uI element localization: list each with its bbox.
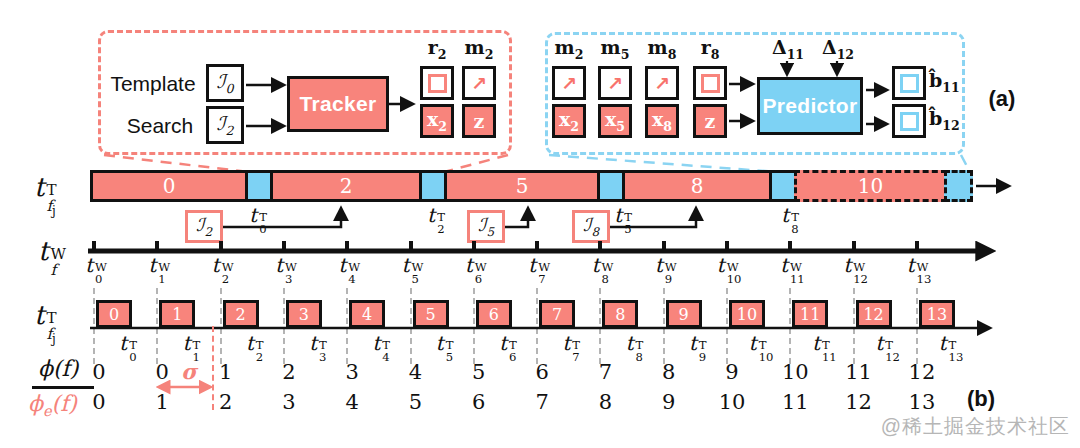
phi-e-value: 1: [140, 392, 184, 413]
wall-tick-label: tW7: [518, 256, 560, 284]
r8-box: [693, 66, 727, 100]
phi-value: 2: [267, 362, 311, 383]
wall-tick-gridline: [220, 288, 222, 364]
panel-a-tag: (a): [980, 86, 1024, 112]
m2-label: m2: [459, 39, 499, 61]
phi-value: 12: [900, 362, 944, 383]
gpu-idle-gap: [597, 170, 625, 202]
x8-box: x8: [645, 104, 679, 138]
wall-tick: [92, 241, 96, 250]
b12-label: b̂12: [929, 110, 965, 132]
phi-e-value: 10: [710, 392, 754, 413]
delta11-label: Δ11: [769, 39, 807, 61]
gpu-work-segment: 10: [794, 170, 947, 202]
z-box: z: [693, 104, 727, 138]
x2-box: x2: [552, 104, 586, 138]
search-frame-symbol: ℐ2: [217, 112, 234, 138]
phi-value: 3: [330, 362, 374, 383]
wall-tick-gridline: [346, 288, 348, 364]
template-frame-symbol: ℐ0: [217, 70, 234, 96]
motion-arrow-icon: ↗: [471, 72, 487, 94]
frame-time-label: tT2: [232, 334, 278, 362]
m2-label: m2: [549, 39, 589, 61]
wall-tick-label: tW11: [771, 256, 813, 284]
x5-box: x5: [598, 104, 632, 138]
watermark: @稀土掘金技术社区: [878, 413, 1070, 440]
r8-label: r8: [690, 39, 730, 61]
wall-tick: [788, 241, 792, 250]
phi-value: 10: [773, 362, 817, 383]
wall-tick-label: tW4: [328, 256, 370, 284]
wall-tick-gridline: [789, 288, 791, 364]
wall-tick-label: tW6: [455, 256, 497, 284]
wall-tick: [345, 241, 349, 250]
wall-tick-gridline: [599, 288, 601, 364]
frame-time-label: tT3: [295, 334, 341, 362]
b11-label: b̂11: [929, 72, 965, 94]
wall-tick-gridline: [93, 288, 95, 364]
wall-tick-gridline: [410, 288, 412, 364]
b12-box: [892, 104, 926, 138]
frame-box: 4: [349, 300, 385, 328]
frame-time-label: tT12: [865, 334, 911, 362]
wall-tick-label: tW9: [645, 256, 687, 284]
wall-axis-label: tWf: [38, 236, 66, 279]
r2-label: r2: [417, 39, 457, 61]
phi-e-value: 6: [457, 392, 501, 413]
phi-value: 0: [140, 362, 184, 383]
wall-tick-label: tW1: [138, 256, 180, 284]
gpu-idle-gap: [944, 170, 973, 202]
phi-e-value: 3: [267, 392, 311, 413]
phi-value: 9: [710, 362, 754, 383]
wall-tick-gridline: [473, 288, 475, 364]
frame-time-label: tT9: [675, 334, 721, 362]
wall-tick: [662, 241, 666, 250]
wall-tick-label: tW12: [835, 256, 877, 284]
wall-tick-label: tW8: [581, 256, 623, 284]
wall-tick: [472, 241, 476, 250]
gpu-idle-gap: [769, 170, 797, 202]
wall-tick-label: tW13: [898, 256, 940, 284]
z-box: z: [462, 104, 496, 138]
wall-tick-label: tW3: [265, 256, 307, 284]
predictor-module: Predictor: [757, 77, 863, 135]
template-frame-box: ℐ0: [206, 64, 244, 102]
gpu-idle-gap: [245, 170, 273, 202]
frame-box: 10: [729, 300, 765, 328]
figure-canvas: Template ℐ0 Search ℐ2 Tracker r2 m2 ↗ x2…: [0, 0, 1080, 448]
wall-tick: [915, 241, 919, 250]
frame-box: 1: [159, 300, 195, 328]
phi-e-value: 0: [77, 392, 121, 413]
wall-tick-gridline: [156, 288, 158, 364]
phi-e-label: ϕe(f): [28, 391, 77, 419]
wall-tick: [535, 241, 539, 250]
frame-time-label: tT10: [738, 334, 784, 362]
phi-value: 4: [394, 362, 438, 383]
search-frame-box: ℐ2: [206, 106, 244, 144]
frame-box: 13: [919, 300, 955, 328]
b11-box: [892, 66, 926, 100]
frame-arrival-box: ℐ2: [185, 210, 223, 243]
frame-time-label: tT13: [928, 334, 974, 362]
panel-b-tag: (b): [956, 386, 1006, 412]
wall-tick: [409, 241, 413, 250]
wall-tick: [219, 241, 223, 250]
phi-label: ϕ(f): [38, 356, 78, 381]
frame-box: 7: [539, 300, 575, 328]
phi-e-value: 12: [837, 392, 881, 413]
m8-label: m8: [642, 39, 682, 61]
phi-value: 7: [583, 362, 627, 383]
frame-time-label: tT7: [548, 334, 594, 362]
gpu-boundary-time-label: tT2: [414, 205, 458, 235]
phi-e-value: 13: [900, 392, 944, 413]
gpu-axis-label: tTfj: [34, 172, 57, 218]
wall-tick-gridline: [283, 288, 285, 364]
phi-value: 1: [204, 362, 248, 383]
phi-value: 5: [457, 362, 501, 383]
phi-e-value: 8: [583, 392, 627, 413]
gpu-work-segment: 2: [270, 170, 422, 202]
phi-value: 11: [837, 362, 881, 383]
fraction-divider: [32, 386, 94, 389]
wall-tick: [852, 241, 856, 250]
wall-tick-label: tW10: [708, 256, 750, 284]
frame-box: 9: [666, 300, 702, 328]
frame-box: 0: [96, 300, 132, 328]
wall-tick-gridline: [916, 288, 918, 364]
r2-box: [420, 66, 454, 100]
frame-box: 11: [792, 300, 828, 328]
frame-box: 12: [856, 300, 892, 328]
frame-arrival-box: ℐ5: [467, 210, 505, 243]
frame-axis-label: tTfj: [34, 300, 57, 346]
gpu-boundary-time-label: tT0: [236, 205, 280, 235]
phi-value: 0: [77, 362, 121, 383]
motion-arrow-icon: ↗: [607, 72, 623, 94]
wall-tick: [155, 241, 159, 250]
frame-time-label: tT6: [485, 334, 531, 362]
frame-box: 3: [286, 300, 322, 328]
phi-e-value: 2: [204, 392, 248, 413]
phi-e-value: 7: [520, 392, 564, 413]
frame-arrival-box: ℐ8: [572, 210, 610, 243]
box-outline-icon: [701, 74, 720, 93]
wall-tick: [725, 241, 729, 250]
phi-e-value: 11: [773, 392, 817, 413]
bbox-outline-icon: [900, 112, 919, 131]
phi-e-value: 4: [330, 392, 374, 413]
wall-tick-gridline: [726, 288, 728, 364]
frame-time-label: tT1: [168, 334, 214, 362]
wall-tick-gridline: [663, 288, 665, 364]
motion-arrow-icon: ↗: [654, 72, 670, 94]
gpu-work-segment: 8: [622, 170, 772, 202]
m2-box: ↗: [462, 66, 496, 100]
delta12-label: Δ12: [819, 39, 857, 61]
frame-box: 2: [223, 300, 259, 328]
gpu-work-segment: 5: [444, 170, 600, 202]
bbox-outline-icon: [900, 74, 919, 93]
phi-value: 6: [520, 362, 564, 383]
m2-box: ↗: [552, 66, 586, 100]
frame-box: 8: [602, 300, 638, 328]
gpu-work-segment: 0: [90, 170, 248, 202]
x2-box: x2: [420, 104, 454, 138]
m5-box: ↗: [598, 66, 632, 100]
motion-arrow-icon: ↗: [561, 72, 577, 94]
wall-tick: [282, 241, 286, 250]
frame-time-label: tT0: [105, 334, 151, 362]
frame-time-label: tT5: [422, 334, 468, 362]
frame-time-label: tT11: [801, 334, 847, 362]
wall-tick-gridline: [536, 288, 538, 364]
wall-tick-label: tW2: [202, 256, 244, 284]
search-label: Search: [118, 112, 202, 138]
frame5-arrival-arrow: [504, 210, 528, 227]
tracker-module: Tracker: [287, 76, 389, 132]
phi-e-value: 5: [394, 392, 438, 413]
template-label: Template: [104, 70, 202, 96]
box-outline-icon: [428, 74, 447, 93]
wall-tick: [598, 241, 602, 250]
phi-value: 8: [647, 362, 691, 383]
m5-label: m5: [595, 39, 635, 61]
m8-box: ↗: [645, 66, 679, 100]
wall-tick-label: tW5: [392, 256, 434, 284]
frame-time-label: tT8: [611, 334, 657, 362]
frame-box: 5: [413, 300, 449, 328]
gpu-idle-gap: [419, 170, 447, 202]
wall-tick-gridline: [853, 288, 855, 364]
phi-e-value: 9: [647, 392, 691, 413]
gpu-boundary-time-label: tT8: [768, 205, 812, 235]
frame-box: 6: [476, 300, 512, 328]
wall-tick-label: tW0: [75, 256, 117, 284]
frame-time-label: tT4: [358, 334, 404, 362]
